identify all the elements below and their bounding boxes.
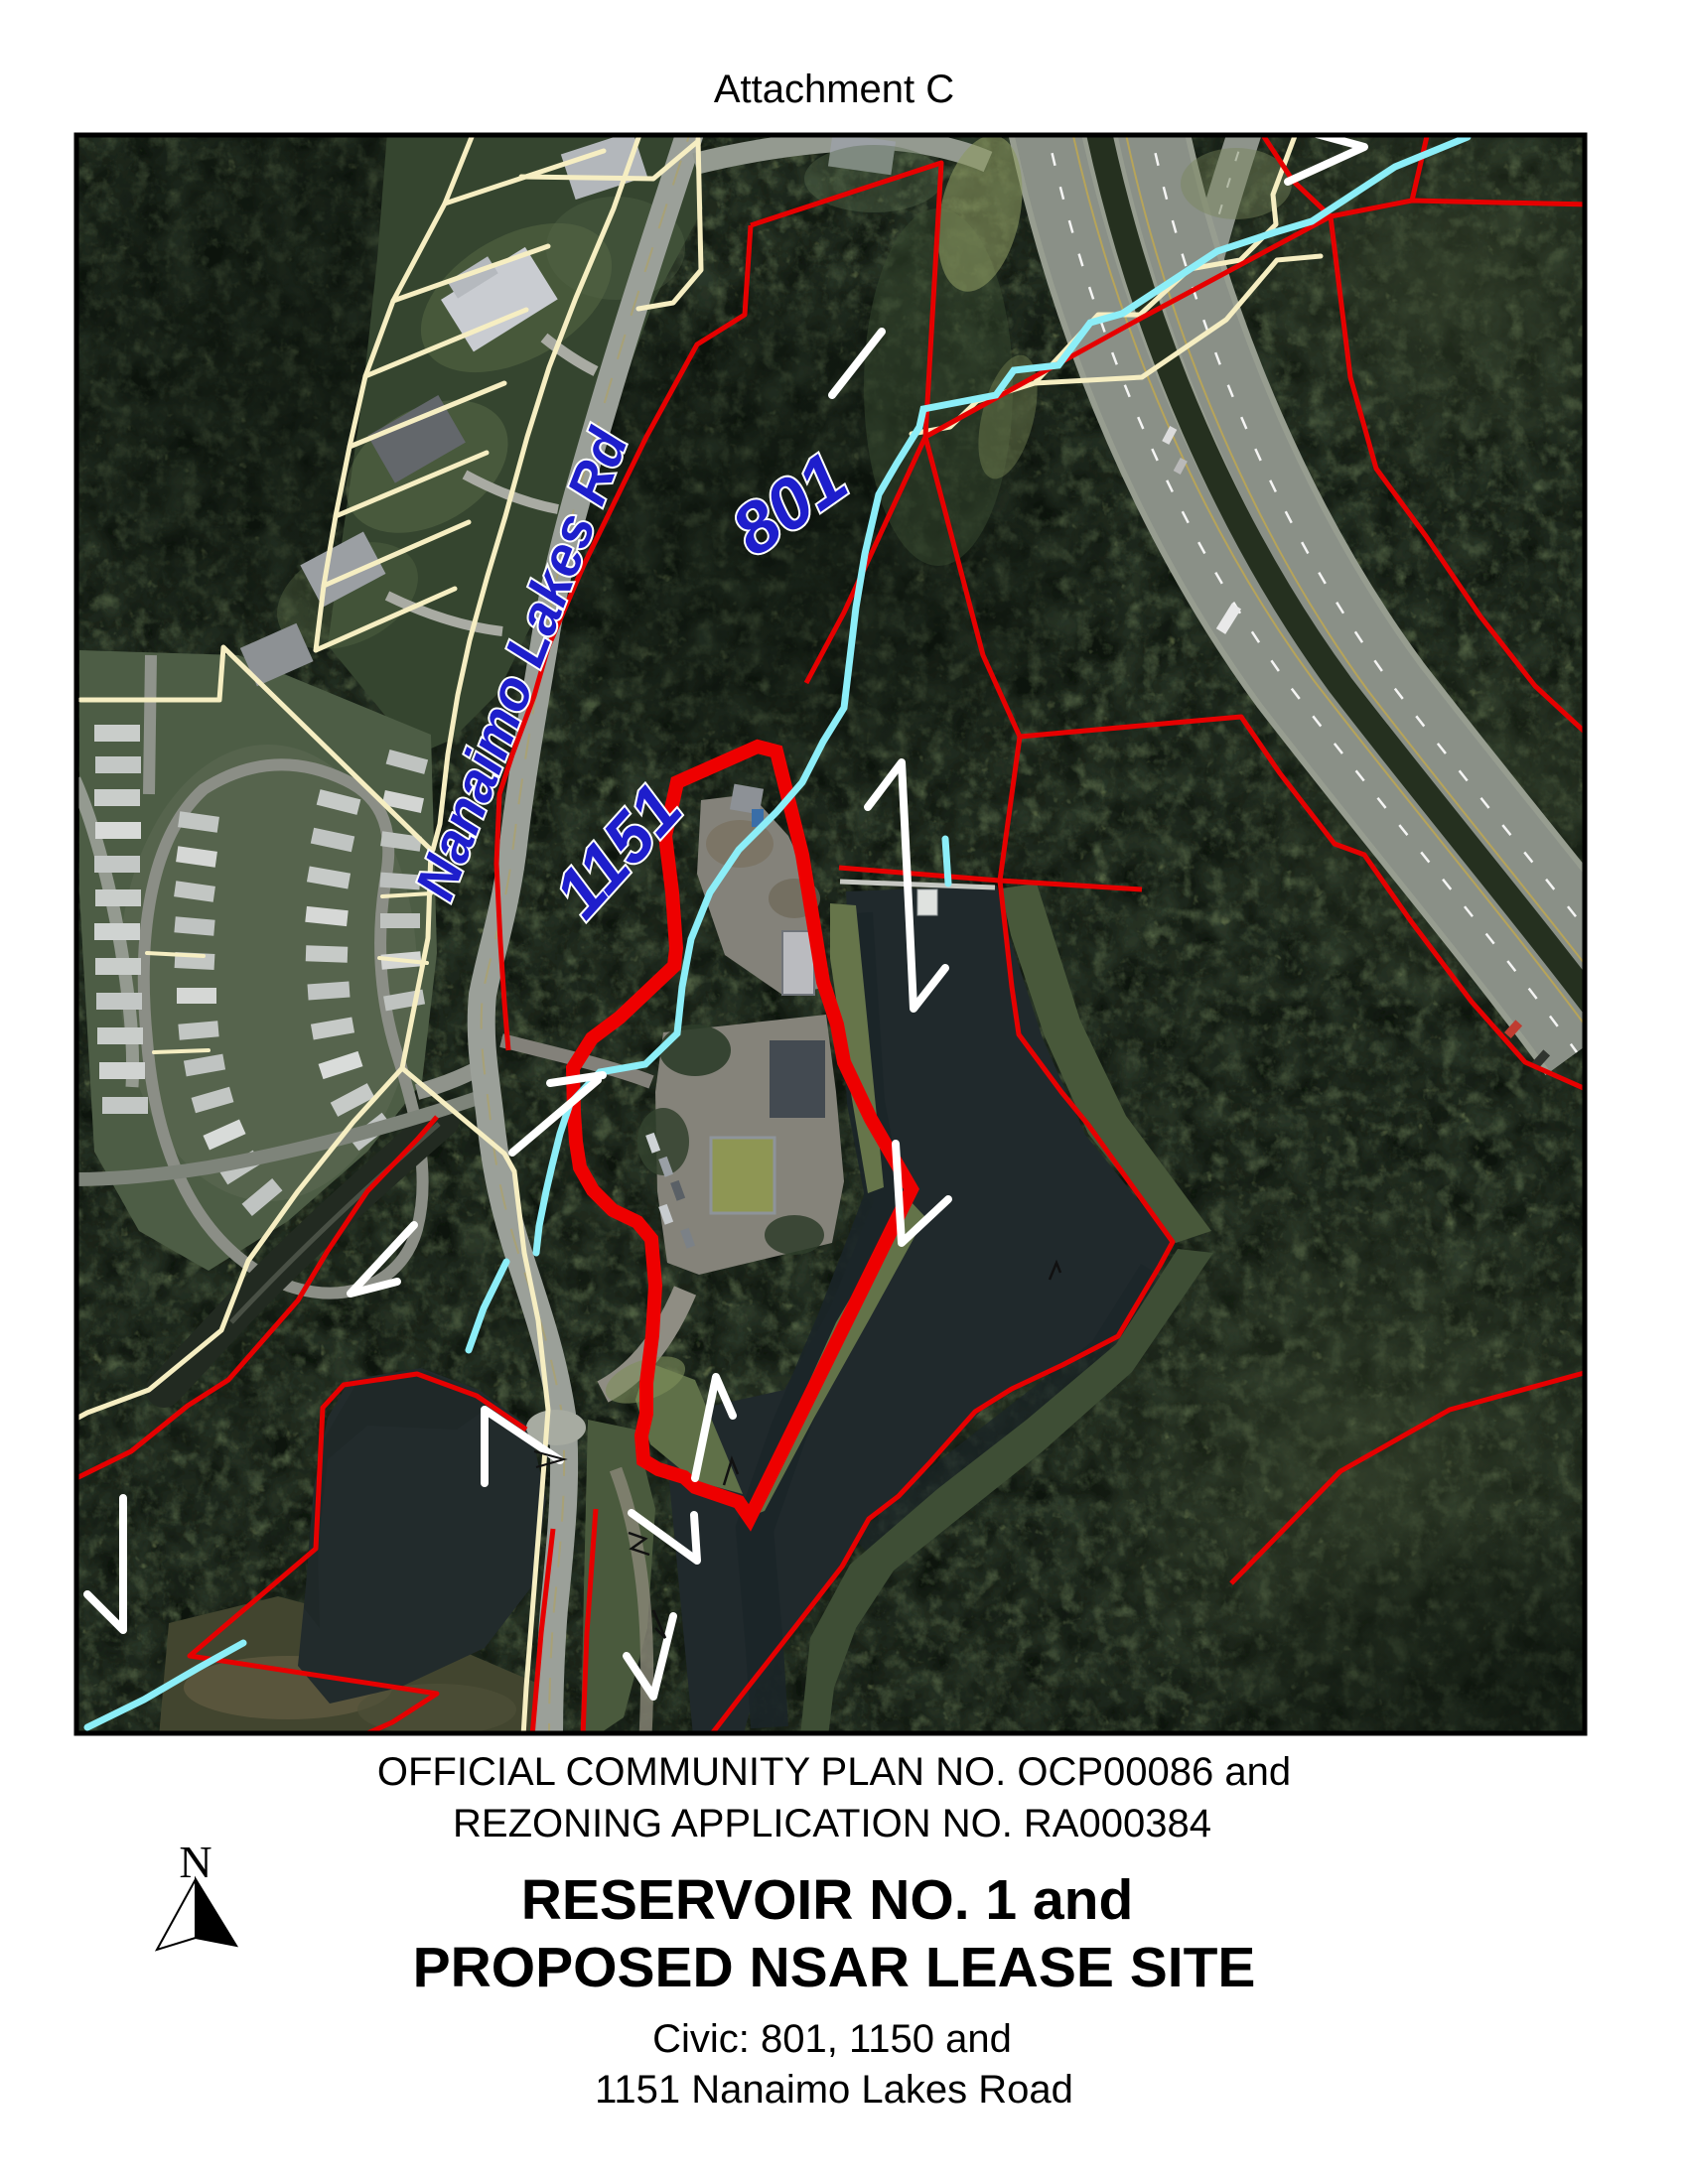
svg-text:PROPOSED NSAR LEASE SITE: PROPOSED NSAR LEASE SITE <box>413 1936 1256 1999</box>
svg-text:REZONING APPLICATION NO. RA000: REZONING APPLICATION NO. RA000384 <box>453 1802 1211 1845</box>
svg-text:Civic: 801, 1150 and: Civic: 801, 1150 and <box>652 2017 1012 2061</box>
svg-text:RESERVOIR NO. 1 and: RESERVOIR NO. 1 and <box>521 1868 1134 1932</box>
svg-text:Attachment C: Attachment C <box>714 68 954 111</box>
svg-text:OFFICIAL COMMUNITY PLAN NO. OC: OFFICIAL COMMUNITY PLAN NO. OCP00086 and <box>377 1750 1291 1794</box>
svg-text:1151 Nanaimo Lakes Road: 1151 Nanaimo Lakes Road <box>595 2068 1073 2112</box>
